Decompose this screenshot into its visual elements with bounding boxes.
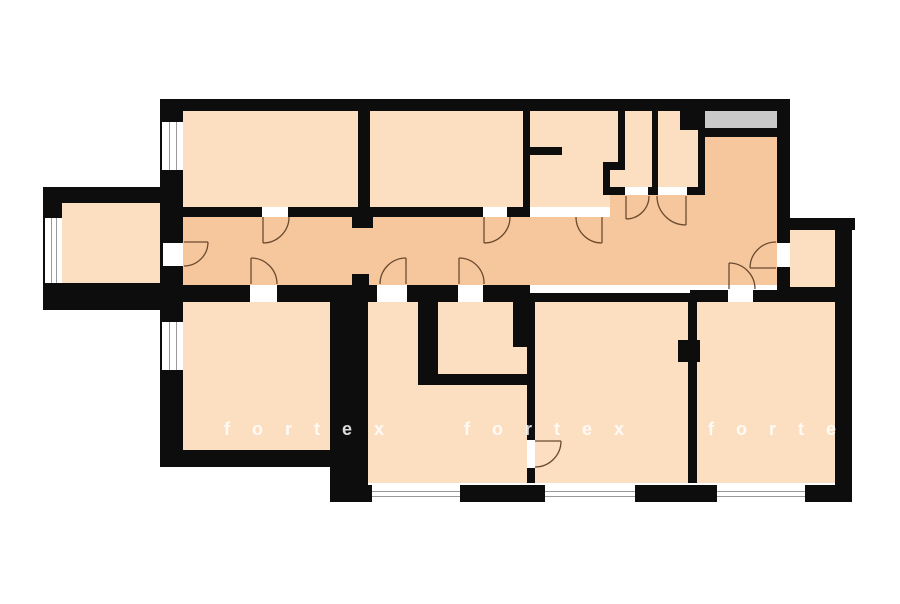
- arc-passage-arc: [380, 258, 406, 284]
- arc-annex-arc: [184, 242, 208, 266]
- arc-room2-arc: [484, 217, 510, 243]
- arc-bath-top-arc: [576, 217, 602, 243]
- watermark-text: fortex: [224, 419, 406, 440]
- arc-middle-room-arc: [535, 441, 561, 467]
- arc-storage-arc: [657, 196, 686, 225]
- arc-right-annex-arc: [750, 242, 776, 268]
- arc-bottom-right-arc: [729, 263, 755, 289]
- arc-room1-arc: [263, 217, 289, 243]
- watermark-text: forte: [708, 419, 858, 440]
- door-arcs-layer: [0, 0, 900, 604]
- floor-plan-canvas: fortex fortex forte: [0, 0, 900, 604]
- watermark-text: fortex: [464, 419, 646, 440]
- arc-bath2-arc: [459, 258, 484, 284]
- arc-toilet-arc: [626, 196, 649, 219]
- arc-bottom-left-arc: [251, 258, 277, 284]
